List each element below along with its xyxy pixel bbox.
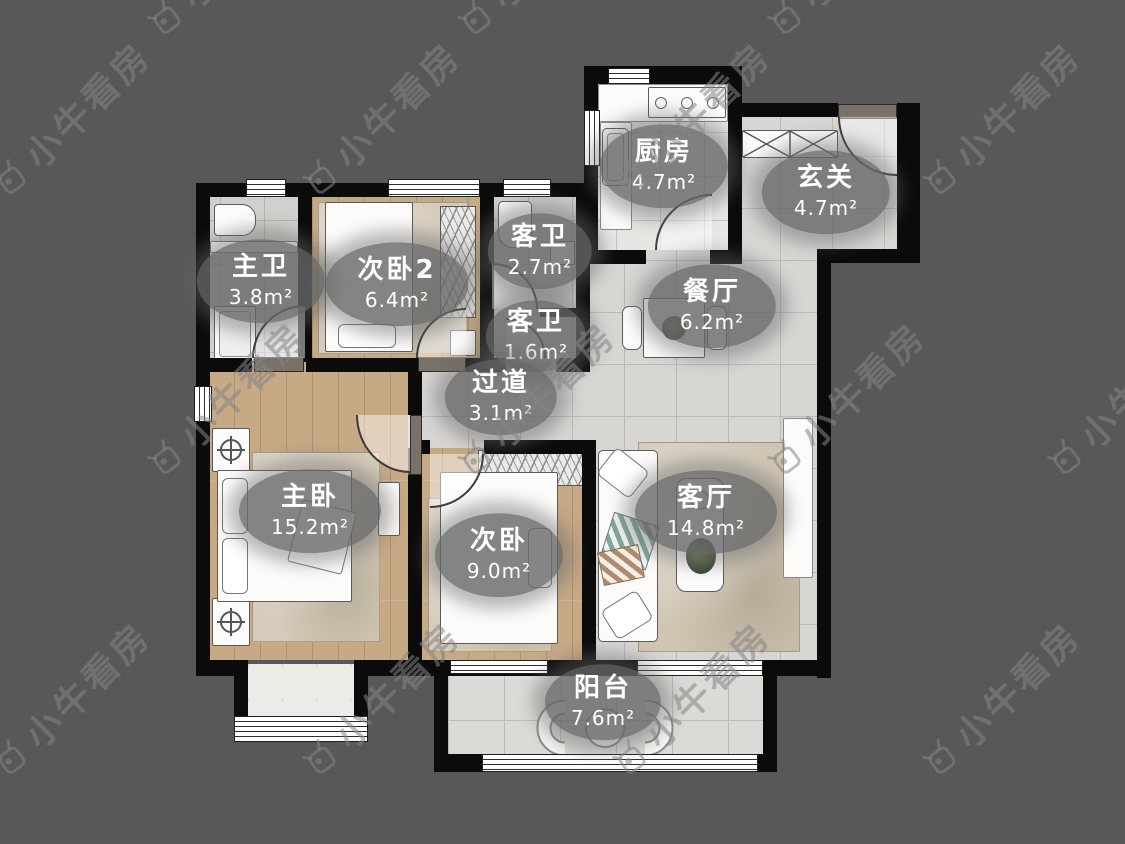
- room-label-bedroom2: 次卧2 6.4m²: [325, 242, 468, 326]
- floorplan-image: 厨房 4.7m² 玄关 4.7m² 主卫 3.8m² 次卧2 6.4m² 客卫 …: [0, 0, 1125, 844]
- pillow: [338, 324, 396, 348]
- wall-segment: [742, 103, 838, 117]
- room-label-balcony: 阳台 7.6m²: [545, 664, 661, 740]
- wall-segment: [897, 103, 920, 263]
- balcony-window: [482, 754, 758, 772]
- floorplan: 厨房 4.7m² 玄关 4.7m² 主卫 3.8m² 次卧2 6.4m² 客卫 …: [0, 0, 1125, 844]
- burner-icon: [681, 97, 693, 109]
- room-label-living: 客厅 14.8m²: [635, 470, 777, 554]
- bedroom2-window: [388, 179, 480, 197]
- room-label-corridor: 过道 3.1m²: [445, 359, 557, 435]
- room-label-bedroom: 次卧 9.0m²: [435, 513, 563, 597]
- nightstand: [212, 428, 250, 472]
- room-name: 玄关: [794, 164, 858, 193]
- wall-segment: [484, 440, 596, 454]
- bay-window-floor: [248, 664, 354, 716]
- room-label-hallway: 玄关 4.7m²: [762, 150, 890, 234]
- room-name: 客卫: [508, 223, 572, 252]
- nightstand: [212, 598, 250, 646]
- bedroom2-door-leaf: [418, 357, 466, 372]
- left-wall-window: [194, 386, 212, 422]
- room-area: 14.8m²: [667, 516, 745, 540]
- room-name: 主卫: [229, 253, 293, 282]
- master-bedroom-door-leaf: [410, 415, 422, 475]
- room-area: 4.7m²: [794, 196, 858, 220]
- kitchen-window: [608, 68, 650, 84]
- guest-bath-window: [503, 179, 551, 197]
- room-area: 4.7m²: [632, 170, 696, 194]
- room-name: 次卧: [467, 527, 531, 556]
- wall-segment: [710, 250, 742, 264]
- room-name: 客卫: [504, 308, 568, 337]
- stove: [648, 87, 726, 118]
- room-area: 3.1m²: [469, 401, 533, 425]
- wall-segment: [306, 358, 416, 372]
- bay-window: [234, 716, 368, 742]
- room-name: 客厅: [667, 484, 745, 513]
- dresser: [378, 482, 400, 536]
- room-area: 9.0m²: [467, 559, 531, 583]
- room-label-dining: 餐厅 6.2m²: [648, 264, 776, 348]
- wall-segment: [480, 308, 492, 317]
- toilet: [214, 204, 256, 236]
- tv-cabinet: [783, 418, 813, 578]
- room-name: 过道: [469, 369, 533, 398]
- master-bath-door-leaf: [254, 357, 304, 372]
- ceiling-lamp-icon: [220, 439, 242, 461]
- room-name: 厨房: [632, 138, 696, 167]
- room-label-master-bedroom: 主卧 15.2m²: [239, 469, 381, 553]
- burner-icon: [655, 97, 667, 109]
- room-area: 6.4m²: [357, 288, 436, 312]
- wall-segment: [408, 475, 422, 660]
- wall-segment: [196, 358, 252, 372]
- kitchen-side-window: [584, 110, 600, 166]
- room-name: 餐厅: [680, 278, 744, 307]
- living-balcony-slider: [637, 660, 763, 676]
- wall-segment: [728, 66, 742, 264]
- wall-segment: [817, 249, 920, 263]
- room-name: 阳台: [571, 674, 635, 703]
- room-label-guest-bath: 客卫 2.7m²: [488, 213, 592, 289]
- room-label-kitchen: 厨房 4.7m²: [600, 124, 728, 208]
- pillow: [222, 538, 248, 594]
- bedroom-balcony-window: [450, 660, 548, 674]
- room-area: 7.6m²: [571, 706, 635, 730]
- wall-segment: [422, 440, 430, 454]
- burner-icon: [707, 97, 719, 109]
- room-area: 6.2m²: [680, 310, 744, 334]
- dining-chair: [622, 306, 642, 350]
- room-label-master-bath: 主卫 3.8m²: [197, 239, 325, 323]
- room-name: 次卧2: [357, 256, 436, 285]
- room-name: 主卧: [271, 483, 349, 512]
- master-bath-window: [246, 179, 286, 197]
- wall-segment: [234, 660, 248, 720]
- room-area: 3.8m²: [229, 285, 293, 309]
- room-area: 2.7m²: [508, 255, 572, 279]
- ceiling-lamp-icon: [220, 611, 242, 633]
- wall-segment: [354, 660, 368, 720]
- wall-segment: [582, 440, 596, 676]
- room-area: 15.2m²: [271, 515, 349, 539]
- wall-segment: [817, 249, 831, 678]
- wall-segment: [584, 250, 646, 264]
